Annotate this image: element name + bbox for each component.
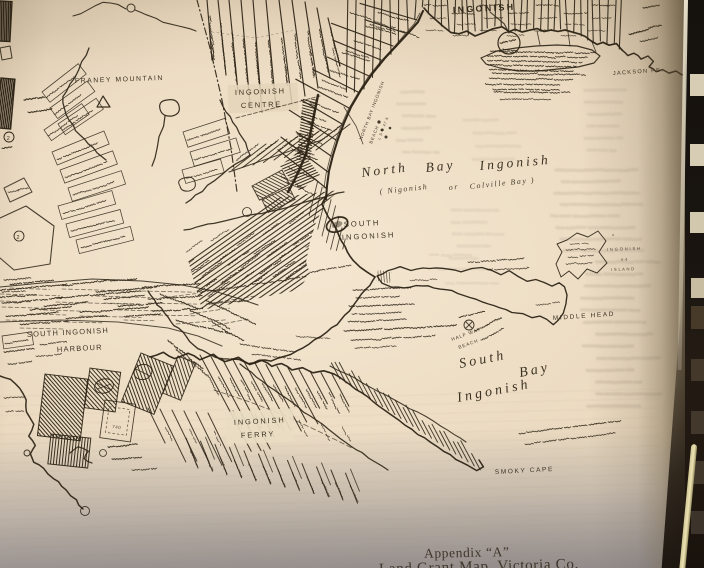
svg-text:740: 740: [112, 424, 122, 430]
svg-text:South: South: [458, 348, 508, 372]
svg-text:I S L A N D: I S L A N D: [611, 266, 635, 272]
svg-text:HARBOUR: HARBOUR: [57, 343, 103, 354]
svg-text:2: 2: [17, 235, 20, 241]
svg-text:CENTRE: CENTRE: [241, 100, 282, 110]
svg-text:Ingonish: Ingonish: [478, 152, 551, 173]
svg-text:( Nigonish: ( Nigonish: [379, 182, 428, 196]
svg-text:INGONISH: INGONISH: [453, 2, 516, 15]
svg-text:o: o: [612, 232, 615, 237]
svg-text:BEACH: BEACH: [458, 338, 480, 350]
svg-text:SMOKY CAPE: SMOKY CAPE: [495, 466, 554, 476]
svg-text:MIDDLE HEAD: MIDDLE HEAD: [553, 311, 616, 322]
svg-text:North: North: [360, 159, 409, 180]
svg-text:2: 2: [7, 136, 10, 142]
svg-text:Colville Bay ): Colville Bay ): [469, 175, 535, 191]
svg-text:# 4: # 4: [621, 257, 628, 262]
svg-text:SOUTH INGONISH: SOUTH INGONISH: [27, 326, 110, 339]
svg-text:INGONISH: INGONISH: [235, 86, 286, 97]
svg-text:SOUTH: SOUTH: [344, 218, 381, 229]
svg-text:Ingonish: Ingonish: [455, 377, 532, 406]
svg-text:or: or: [448, 182, 459, 192]
svg-text:INGONISH: INGONISH: [342, 230, 396, 242]
svg-text:FRANEY MOUNTAIN: FRANEY MOUNTAIN: [75, 75, 164, 85]
svg-text:FERRY: FERRY: [241, 429, 276, 440]
svg-text:Bay: Bay: [425, 157, 456, 175]
